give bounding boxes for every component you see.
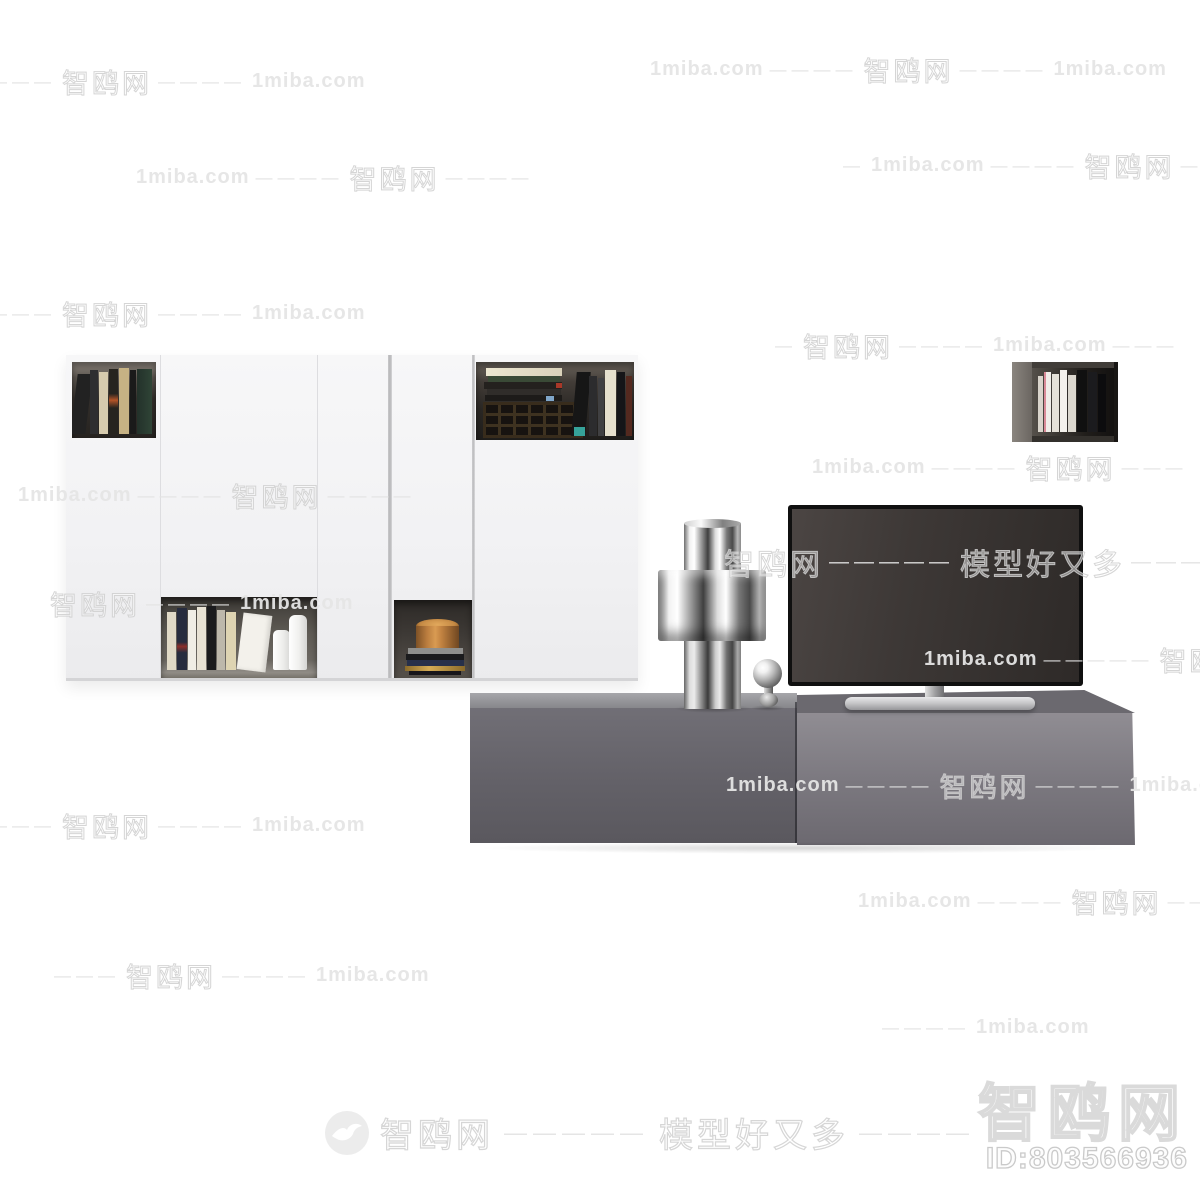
- footer-dashes: ————: [859, 1119, 975, 1146]
- chrome-lamp-top-cap: [684, 519, 741, 528]
- watermark-site-name: 智鸥网: [62, 294, 152, 333]
- book-label: [546, 396, 554, 401]
- watermark-site-name: 智鸥网: [231, 476, 321, 515]
- watermark-domain: 1miba.com: [252, 302, 365, 325]
- watermark-dashes: ———: [1121, 458, 1187, 478]
- watermark-site-name: 智鸥网: [126, 956, 216, 995]
- book-spine: [109, 369, 118, 434]
- cabinet-edge: [1114, 362, 1118, 442]
- watermark-dashes: ————: [158, 304, 246, 324]
- watermark-row: 1miba.com ———— 智鸥网 ————: [136, 158, 533, 197]
- watermark-dashes: ————: [327, 486, 415, 506]
- footer-brand-watermark: 智鸥网 ————— 模型好又多 ————: [324, 1108, 975, 1157]
- tv-stand-shadow: [475, 842, 1130, 854]
- wooden-box-body: [416, 626, 459, 648]
- book-spine: [1044, 372, 1051, 432]
- watermark-dashes: ————: [158, 72, 246, 92]
- book-spine: [1077, 370, 1087, 432]
- book-horizontal: [409, 671, 461, 675]
- watermark-row: — 1miba.com ———— 智鸥网 —: [843, 146, 1200, 185]
- watermark-row: 1miba.com ———— 智鸥网 ———— 1miba.com: [726, 766, 1200, 805]
- watermark-dashes: —————: [829, 551, 954, 574]
- watermark-domain: 1miba.com: [252, 814, 365, 837]
- cabinet-module-gap: [472, 355, 475, 681]
- watermark-row: 智鸥网 ———— 1miba.com: [50, 584, 353, 623]
- cabinet-module-gap: [388, 355, 392, 681]
- book-spine: [605, 370, 616, 436]
- watermark-domain: 1miba.com: [18, 484, 131, 507]
- site-logo-text: 智鸥网: [978, 1063, 1188, 1153]
- book-spine: [1038, 376, 1043, 432]
- book-spine: [1068, 375, 1076, 432]
- watermark-row: ——— 智鸥网 ———— 1miba.com: [54, 956, 429, 995]
- watermark-dashes: ————: [137, 486, 225, 506]
- watermark-row: ——— 智鸥网 ———— 1miba.com: [0, 294, 365, 333]
- white-vase: [273, 630, 290, 670]
- watermark-dashes: ———: [0, 304, 56, 324]
- watermark-dashes: ————: [1035, 776, 1123, 796]
- book-spine: [589, 376, 597, 436]
- watermark-domain: 1miba.com: [976, 1016, 1089, 1039]
- book-label: [556, 383, 562, 388]
- watermark-row-center: 智鸥网 ————— 模型好又多 —————: [724, 540, 1200, 584]
- watermark-site-name: 智鸥网: [50, 584, 140, 623]
- chrome-lamp-lower-cylinder: [684, 641, 741, 709]
- book-spine: [598, 378, 604, 436]
- white-vase: [289, 615, 307, 670]
- model-id-label: ID:803566936: [986, 1142, 1188, 1176]
- watermark-domain: 1miba.com: [316, 964, 429, 987]
- watermark-site-name: 智鸥网: [1025, 448, 1115, 487]
- chrome-sphere-ornament: [753, 659, 782, 688]
- cabinet-door-seam: [317, 355, 318, 681]
- watermark-domain: 1miba.com: [726, 774, 839, 797]
- watermark-site-name: 智鸥网: [863, 50, 953, 89]
- watermark-dashes: ————: [769, 60, 857, 80]
- book-spine: [1088, 372, 1097, 432]
- gull-logo-icon: [324, 1110, 370, 1156]
- bookshelf-niche-top-right: [476, 362, 634, 440]
- watermark-domain: 1miba.com: [1129, 774, 1200, 797]
- watermark-row: 1miba.com ————— 智鸥网: [924, 640, 1200, 679]
- watermark-domain: 1miba.com: [650, 58, 763, 81]
- watermark-dashes: ————: [959, 60, 1047, 80]
- cabinet-side-panel: [1012, 362, 1032, 442]
- watermark-dashes: ————: [222, 966, 310, 986]
- watermark-site-name: 智鸥网: [349, 158, 439, 197]
- watermark-dashes: —————: [1043, 650, 1153, 670]
- watermark-dashes: —————: [1131, 551, 1200, 574]
- watermark-dashes: ———: [1112, 336, 1178, 356]
- watermark-domain: 1miba.com: [252, 70, 365, 93]
- watermark-domain: 1miba.com: [1053, 58, 1166, 81]
- watermark-dashes: ————: [990, 156, 1078, 176]
- watermark-dashes: ———: [0, 816, 56, 836]
- watermark-row: 1miba.com ———— 智鸥网 ————: [18, 476, 415, 515]
- watermark-row: 1miba.com ———— 智鸥网 ———: [812, 448, 1187, 487]
- book-spine: [617, 372, 625, 436]
- watermark-domain: 1miba.com: [858, 890, 971, 913]
- footer-site-name: 智鸥网: [380, 1108, 494, 1157]
- product-render-image: ——— 智鸥网 ———— 1miba.com 1miba.com ———— 智鸥…: [0, 0, 1200, 1200]
- book-spine: [1098, 374, 1106, 432]
- wall-cabinet-unit: [66, 355, 638, 681]
- book-horizontal: [484, 382, 562, 389]
- book-horizontal: [486, 368, 562, 376]
- watermark-site-name: 智鸥网: [1071, 882, 1161, 921]
- footer-slogan: 模型好又多: [659, 1108, 849, 1157]
- book-spine: [90, 370, 98, 434]
- watermark-dashes: ————: [146, 594, 234, 614]
- watermark-domain: 1miba.com: [240, 592, 353, 615]
- watermark-site-name: 智鸥网: [62, 62, 152, 101]
- watermark-row: ———— 1miba.com: [882, 1016, 1089, 1039]
- watermark-slogan: 模型好又多: [960, 540, 1125, 584]
- watermark-site-name: 智鸥网: [1084, 146, 1174, 185]
- watermark-domain: 1miba.com: [924, 648, 1037, 671]
- watermark-dashes: ————: [882, 1018, 970, 1038]
- book-spine: [626, 376, 632, 436]
- bookshelf-niche-top-left: [72, 362, 156, 438]
- book-spine: [1060, 370, 1067, 432]
- watermark-dashes: ————: [158, 816, 246, 836]
- bookshelf-niche-bottom-right: [394, 600, 472, 678]
- watermark-row: ——— 智鸥网 ———— 1miba.com: [0, 806, 365, 845]
- watermark-dashes: ————: [977, 892, 1065, 912]
- ornament-foot: [759, 693, 778, 707]
- book-label: [574, 427, 585, 436]
- book-spine: [1052, 374, 1059, 432]
- watermark-dashes: —: [1180, 156, 1200, 176]
- watermark-site-name: 智鸥网: [62, 806, 152, 845]
- cabinet-bottom-edge: [66, 678, 638, 681]
- watermark-dashes: ————: [445, 168, 533, 188]
- book-spine: [137, 369, 152, 434]
- watermark-dashes: —: [775, 336, 797, 356]
- watermark-row: ——— 智鸥网 ———— 1miba.com: [0, 62, 365, 101]
- watermark-domain: 1miba.com: [993, 334, 1106, 357]
- watermark-dashes: ————: [931, 458, 1019, 478]
- watermark-dashes: —: [843, 156, 865, 176]
- cabinet-bottom-panel: [1032, 436, 1118, 442]
- watermark-dashes: ————: [255, 168, 343, 188]
- watermark-dashes: ———: [54, 966, 120, 986]
- watermark-domain: 1miba.com: [136, 166, 249, 189]
- watermark-row: 1miba.com ———— 智鸥网 ————: [858, 882, 1200, 921]
- watermark-row: 1miba.com ———— 智鸥网 ———— 1miba.com: [650, 50, 1167, 89]
- wall-box-cabinet: [1012, 362, 1118, 442]
- watermark-domain: 1miba.com: [812, 456, 925, 479]
- watermark-domain: 1miba.com: [871, 154, 984, 177]
- cabinet-interior: [1032, 368, 1114, 436]
- watermark-site-name: 智鸥网: [939, 766, 1029, 805]
- book-spine: [130, 370, 136, 434]
- book-spine: [119, 368, 129, 434]
- watermark-site-name: 智鸥网: [724, 540, 823, 584]
- watermark-site-name: 智鸥网: [1159, 640, 1200, 679]
- watermark-dashes: ————: [845, 776, 933, 796]
- watermark-site-name: 智鸥网: [803, 326, 893, 365]
- watermark-dashes: ———: [0, 72, 56, 92]
- storage-crate-grid: [483, 402, 583, 438]
- watermark-dashes: ————: [899, 336, 987, 356]
- tv-base-plate: [845, 697, 1035, 710]
- watermark-row: — 智鸥网 ———— 1miba.com ———: [775, 326, 1178, 365]
- watermark-dashes: ————: [1167, 892, 1200, 912]
- book-spine: [99, 372, 108, 434]
- footer-dashes: —————: [504, 1119, 649, 1146]
